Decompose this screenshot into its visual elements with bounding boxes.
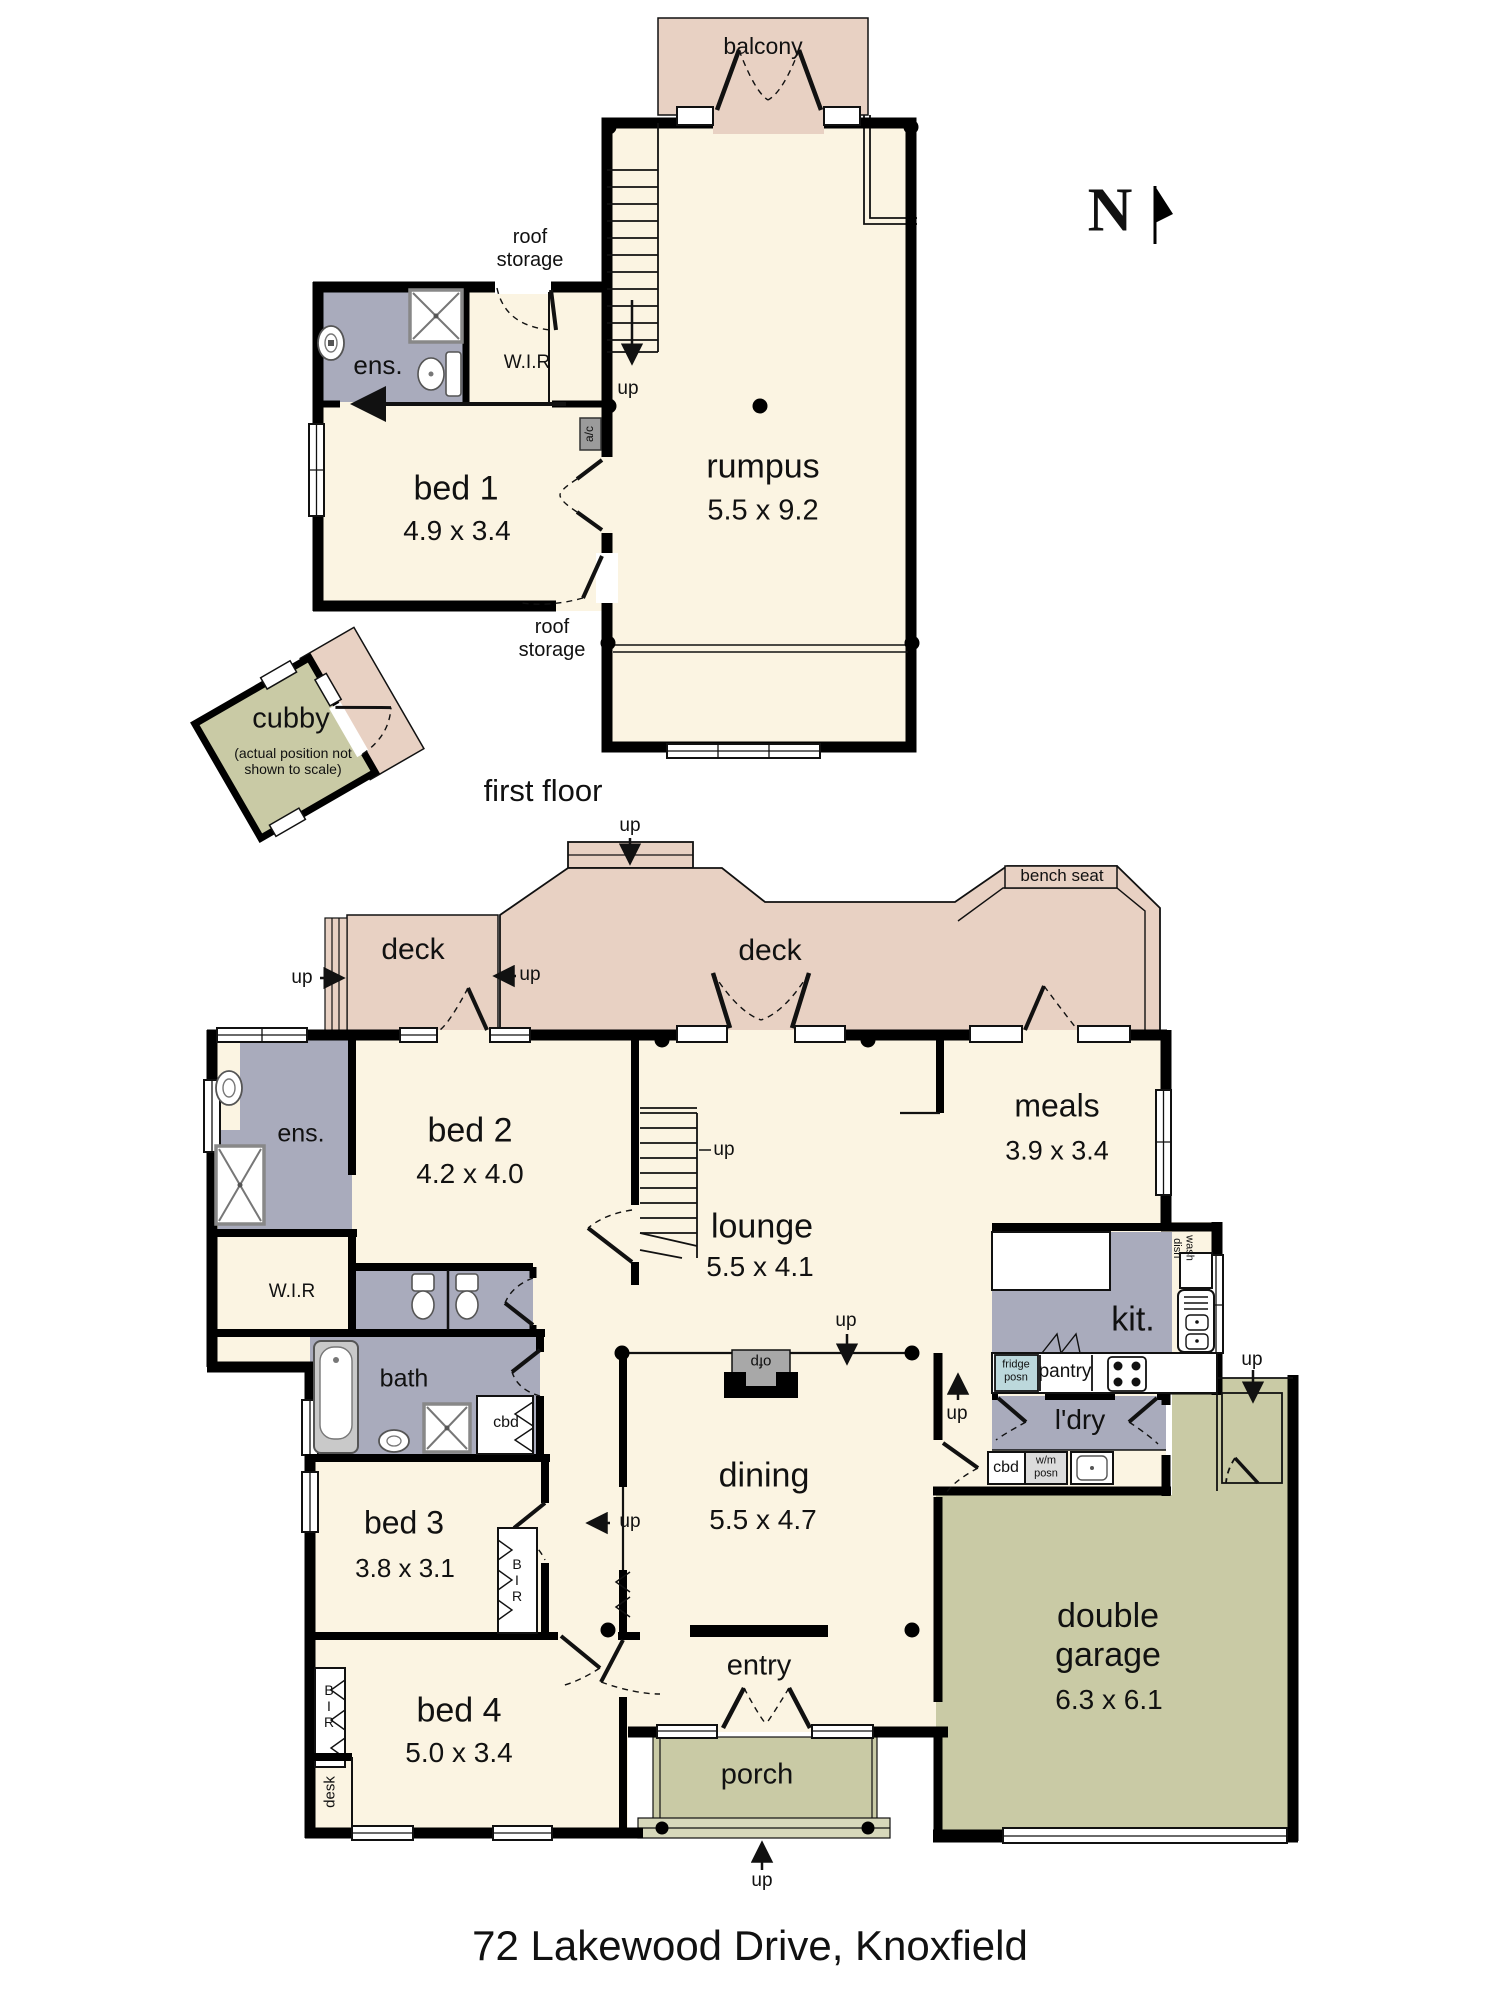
first-floor-plan: [191, 18, 1173, 843]
deck-right-label: deck: [738, 934, 801, 969]
entry-wall-bar: [690, 1625, 828, 1637]
balcony-door-opening: [713, 112, 824, 134]
lounge-name: lounge: [711, 1207, 813, 1246]
bathtub: [314, 1341, 358, 1453]
bath-label: bath: [380, 1365, 429, 1394]
kitchen-label: kit.: [1111, 1300, 1154, 1339]
wir1-door-opening: [495, 280, 551, 294]
cubby-note: (actual position not shown to scale): [234, 745, 352, 777]
bed1-door-opening: [596, 457, 618, 533]
bed4-dims: 5.0 x 3.4: [405, 1737, 512, 1769]
up-stairs-gf-label: up: [713, 1139, 734, 1161]
bed1-dims: 4.9 x 3.4: [403, 515, 510, 547]
ens1-label: ens.: [353, 351, 402, 381]
floor-plan-drawing: [0, 0, 1500, 2000]
up-landing-label: up: [1241, 1349, 1262, 1371]
bir-bed3-label: B I R: [512, 1556, 522, 1604]
porch-label: porch: [721, 1758, 794, 1791]
bench-seat-label: bench seat: [1020, 866, 1103, 886]
lounge-dims: 5.5 x 4.1: [706, 1251, 813, 1283]
main-deck: [500, 866, 1160, 1032]
up-dining-label: up: [835, 1310, 856, 1332]
bed1-name: bed 1: [413, 469, 498, 508]
laundry-label: l'dry: [1055, 1404, 1105, 1436]
ens1-shower: [410, 290, 462, 342]
floor-plan-page: balcony roof storage ens. W.I.R up a/c b…: [0, 0, 1500, 2000]
ens2-shower: [216, 1146, 264, 1224]
dining-name: dining: [719, 1456, 810, 1495]
garage-dims: 6.3 x 6.1: [1055, 1684, 1162, 1716]
roof-storage-bottom-label: roof storage: [519, 616, 586, 662]
bed4-name: bed 4: [416, 1691, 501, 1730]
dishwash-label: dish wash: [1170, 1235, 1195, 1261]
fridge-label: fridge posn: [1002, 1358, 1030, 1383]
garage-name: double garage: [1055, 1597, 1161, 1675]
bed3-dims: 3.8 x 3.1: [355, 1554, 455, 1584]
ac-label: a/c: [583, 426, 597, 442]
bed1-window: [309, 424, 324, 516]
meals-dims: 3.9 x 3.4: [1005, 1135, 1109, 1166]
cubby-label: cubby: [252, 702, 329, 735]
up-hall-label: up: [619, 1511, 640, 1533]
pantry-label: pantry: [1039, 1361, 1092, 1383]
bed3-name: bed 3: [364, 1505, 444, 1542]
bath-shower: [424, 1404, 470, 1452]
ens2-basin: [216, 1071, 242, 1105]
rumpus-window: [667, 744, 820, 758]
rumpus-dims: 5.5 x 9.2: [707, 494, 818, 527]
up-steps-left-label: up: [291, 967, 312, 989]
wir2-label: W.I.R: [269, 1281, 315, 1303]
cbd-bath-label: cbd: [493, 1414, 519, 1432]
up-deck-mid-label: up: [519, 964, 540, 986]
dining-dims: 5.5 x 4.7: [709, 1504, 816, 1536]
bath-basin: [379, 1430, 409, 1452]
garage-door: [1003, 1828, 1287, 1843]
desk-label: desk: [321, 1776, 338, 1808]
rumpus-floor: [602, 118, 916, 752]
up-stairs-1f-label: up: [617, 378, 638, 400]
up-porch-label: up: [751, 1870, 772, 1892]
ens2-label: ens.: [277, 1120, 324, 1149]
up-corridor-label: up: [946, 1403, 967, 1425]
wm-label: w/m posn: [1034, 1454, 1058, 1479]
entry-label: entry: [727, 1649, 791, 1682]
meals-name: meals: [1014, 1088, 1099, 1125]
north-label: N: [1088, 175, 1133, 246]
first-floor-caption: first floor: [484, 773, 603, 809]
ofp-label: ofp: [751, 1353, 772, 1370]
balcony-label: balcony: [723, 33, 802, 59]
address-title: 72 Lakewood Drive, Knoxfield: [472, 1922, 1028, 1970]
ens1-basin: [318, 326, 344, 360]
roof-storage-top-label: roof storage: [497, 226, 564, 272]
bir-bed4-label: B I R: [324, 1682, 334, 1730]
bed2-name: bed 2: [427, 1111, 512, 1150]
wir1-label: W.I.R: [504, 352, 550, 374]
up-deck-top-label: up: [619, 815, 640, 837]
left-deck-steps: [325, 918, 347, 1032]
rumpus-name: rumpus: [706, 447, 819, 486]
cbd-laundry-label: cbd: [993, 1459, 1019, 1477]
deck-left-label: deck: [381, 933, 444, 968]
north-arrow-icon: [1155, 186, 1173, 244]
bed2-dims: 4.2 x 4.0: [416, 1158, 523, 1190]
